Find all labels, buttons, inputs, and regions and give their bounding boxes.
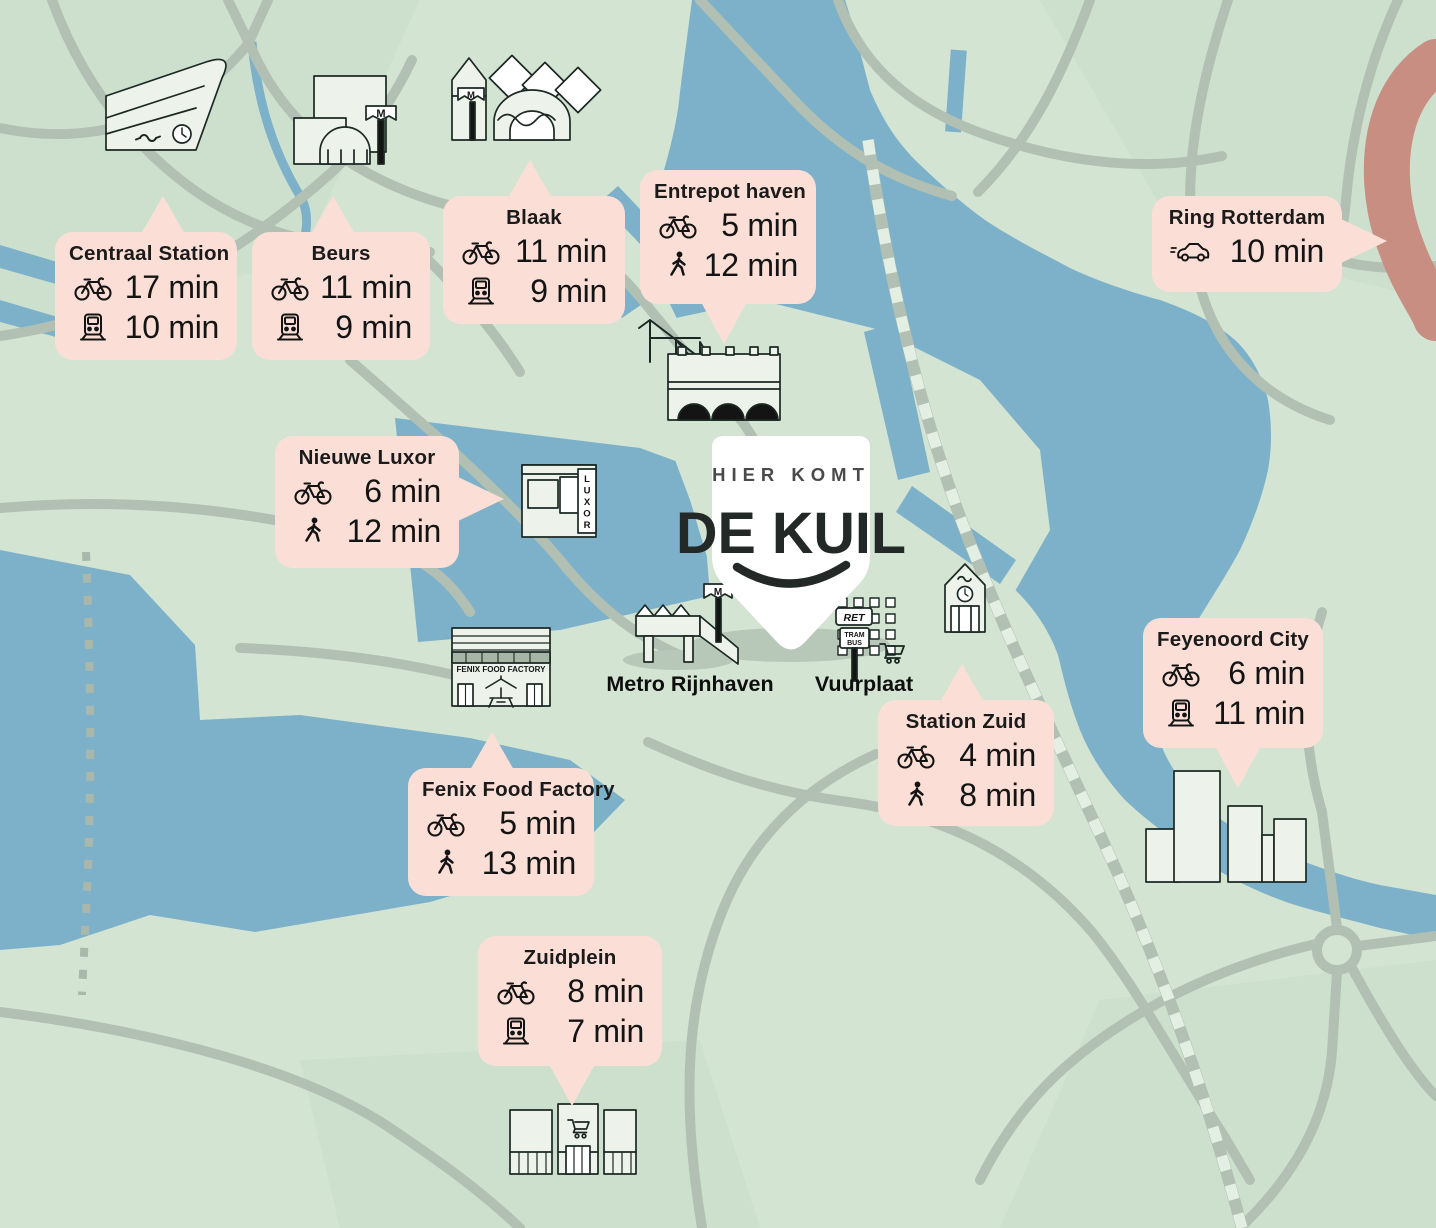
travel-time: 7 min	[567, 1013, 644, 1050]
callout-title: Entrepot haven	[654, 180, 802, 204]
callout-title: Centraal Station	[69, 242, 223, 266]
metro-icon	[73, 312, 113, 342]
callout-zuidplein: Zuidplein 8 min 7 min	[478, 936, 662, 1066]
travel-time: 12 min	[347, 513, 441, 550]
bike-icon	[896, 740, 936, 770]
travel-time: 8 min	[959, 777, 1036, 814]
svg-text:M: M	[714, 587, 722, 598]
travel-time: 4 min	[959, 737, 1036, 774]
metro-shadow	[623, 650, 733, 670]
callout-title: Feyenoord City	[1157, 628, 1309, 652]
travel-time: 5 min	[499, 805, 576, 842]
bike-icon	[270, 272, 310, 302]
callout-blaak: Blaak 11 min 9 min	[443, 196, 625, 324]
callout-centraal-station: Centraal Station 17 min 10 min	[55, 232, 237, 360]
bike-icon	[496, 976, 536, 1006]
travel-time: 9 min	[530, 273, 607, 310]
travel-time: 11 min	[1213, 695, 1305, 732]
bike-icon	[293, 476, 333, 506]
metro-icon	[1161, 698, 1201, 728]
zuidplein-illustration	[510, 1104, 636, 1174]
svg-text:M: M	[376, 108, 385, 120]
callout-title: Fenix Food Factory	[422, 778, 580, 802]
travel-time: 5 min	[721, 207, 798, 244]
svg-text:M: M	[467, 90, 475, 101]
walk-icon	[293, 516, 333, 546]
callout-feyenoord-city: Feyenoord City 6 min 11 min	[1143, 618, 1323, 748]
travel-time: 10 min	[1230, 233, 1324, 270]
travel-time: 12 min	[704, 247, 798, 284]
walk-icon	[426, 848, 466, 878]
callout-ring-rotterdam: Ring Rotterdam 10 min	[1152, 196, 1342, 292]
travel-row: 5 min	[654, 206, 802, 244]
travel-row: 6 min	[289, 472, 445, 510]
travel-row: 11 min	[457, 232, 611, 270]
metro-icon	[270, 312, 310, 342]
callout-title: Nieuwe Luxor	[289, 446, 445, 470]
callout-title: Zuidplein	[492, 946, 648, 970]
bike-icon	[658, 210, 698, 240]
travel-row: 8 min	[892, 776, 1040, 814]
luxor-illustration: LUXOR	[522, 465, 596, 537]
pin-title: DE KUIL	[676, 501, 906, 566]
travel-row: 12 min	[289, 512, 445, 550]
travel-row: 9 min	[266, 308, 416, 346]
travel-time: 6 min	[364, 473, 441, 510]
callout-entrepot-haven: Entrepot haven 5 min 12 min	[640, 170, 816, 304]
travel-time: 17 min	[125, 269, 219, 306]
travel-row: 17 min	[69, 268, 223, 306]
rotterdam-travel-map: M M	[0, 0, 1436, 1228]
travel-row: 11 min	[266, 268, 416, 306]
car-icon	[1170, 236, 1210, 266]
travel-row: 12 min	[654, 246, 802, 284]
travel-row: 4 min	[892, 736, 1040, 774]
walk-icon	[896, 780, 936, 810]
callout-title: Beurs	[266, 242, 416, 266]
travel-row: 5 min	[422, 804, 580, 842]
travel-time: 6 min	[1228, 655, 1305, 692]
callout-title: Station Zuid	[892, 710, 1040, 734]
svg-text:BUS: BUS	[847, 640, 862, 647]
travel-row: 8 min	[492, 972, 648, 1010]
callout-title: Blaak	[457, 206, 611, 230]
metro-icon	[461, 276, 501, 306]
label-metro-rijnhaven: Metro Rijnhaven	[600, 672, 780, 697]
label-vuurplaat: Vuurplaat	[806, 672, 922, 697]
bike-icon	[461, 236, 501, 266]
svg-text:RET: RET	[844, 612, 867, 624]
walk-icon	[658, 250, 698, 280]
travel-time: 8 min	[567, 973, 644, 1010]
callout-station-zuid: Station Zuid 4 min 8 min	[878, 700, 1054, 826]
travel-time: 13 min	[482, 845, 576, 882]
bike-icon	[1161, 658, 1201, 688]
travel-time: 11 min	[320, 269, 412, 306]
callout-beurs: Beurs 11 min 9 min	[252, 232, 430, 360]
travel-time: 10 min	[125, 309, 219, 346]
luxor-sign-text: LUXOR	[583, 474, 591, 531]
svg-text:TRAM: TRAM	[844, 632, 864, 639]
travel-row: 10 min	[69, 308, 223, 346]
metro-icon	[496, 1016, 536, 1046]
travel-row: 11 min	[1157, 694, 1309, 732]
travel-time: 9 min	[335, 309, 412, 346]
pin-eyebrow: HIER KOMT	[712, 464, 870, 485]
callout-fenix-food-factory: Fenix Food Factory 5 min 13 min	[408, 768, 594, 896]
travel-row: 13 min	[422, 844, 580, 882]
travel-time: 11 min	[515, 233, 607, 270]
callout-nieuwe-luxor: Nieuwe Luxor 6 min 12 min	[275, 436, 459, 568]
svg-text:FENIX FOOD FACTORY: FENIX FOOD FACTORY	[457, 665, 547, 674]
travel-row: 6 min	[1157, 654, 1309, 692]
callout-title: Ring Rotterdam	[1166, 206, 1328, 230]
travel-row: 10 min	[1166, 232, 1328, 270]
bike-icon	[73, 272, 113, 302]
travel-row: 7 min	[492, 1012, 648, 1050]
bike-icon	[426, 808, 466, 838]
fenix-food-factory-illustration: FENIX FOOD FACTORY	[452, 628, 550, 707]
travel-row: 9 min	[457, 272, 611, 310]
